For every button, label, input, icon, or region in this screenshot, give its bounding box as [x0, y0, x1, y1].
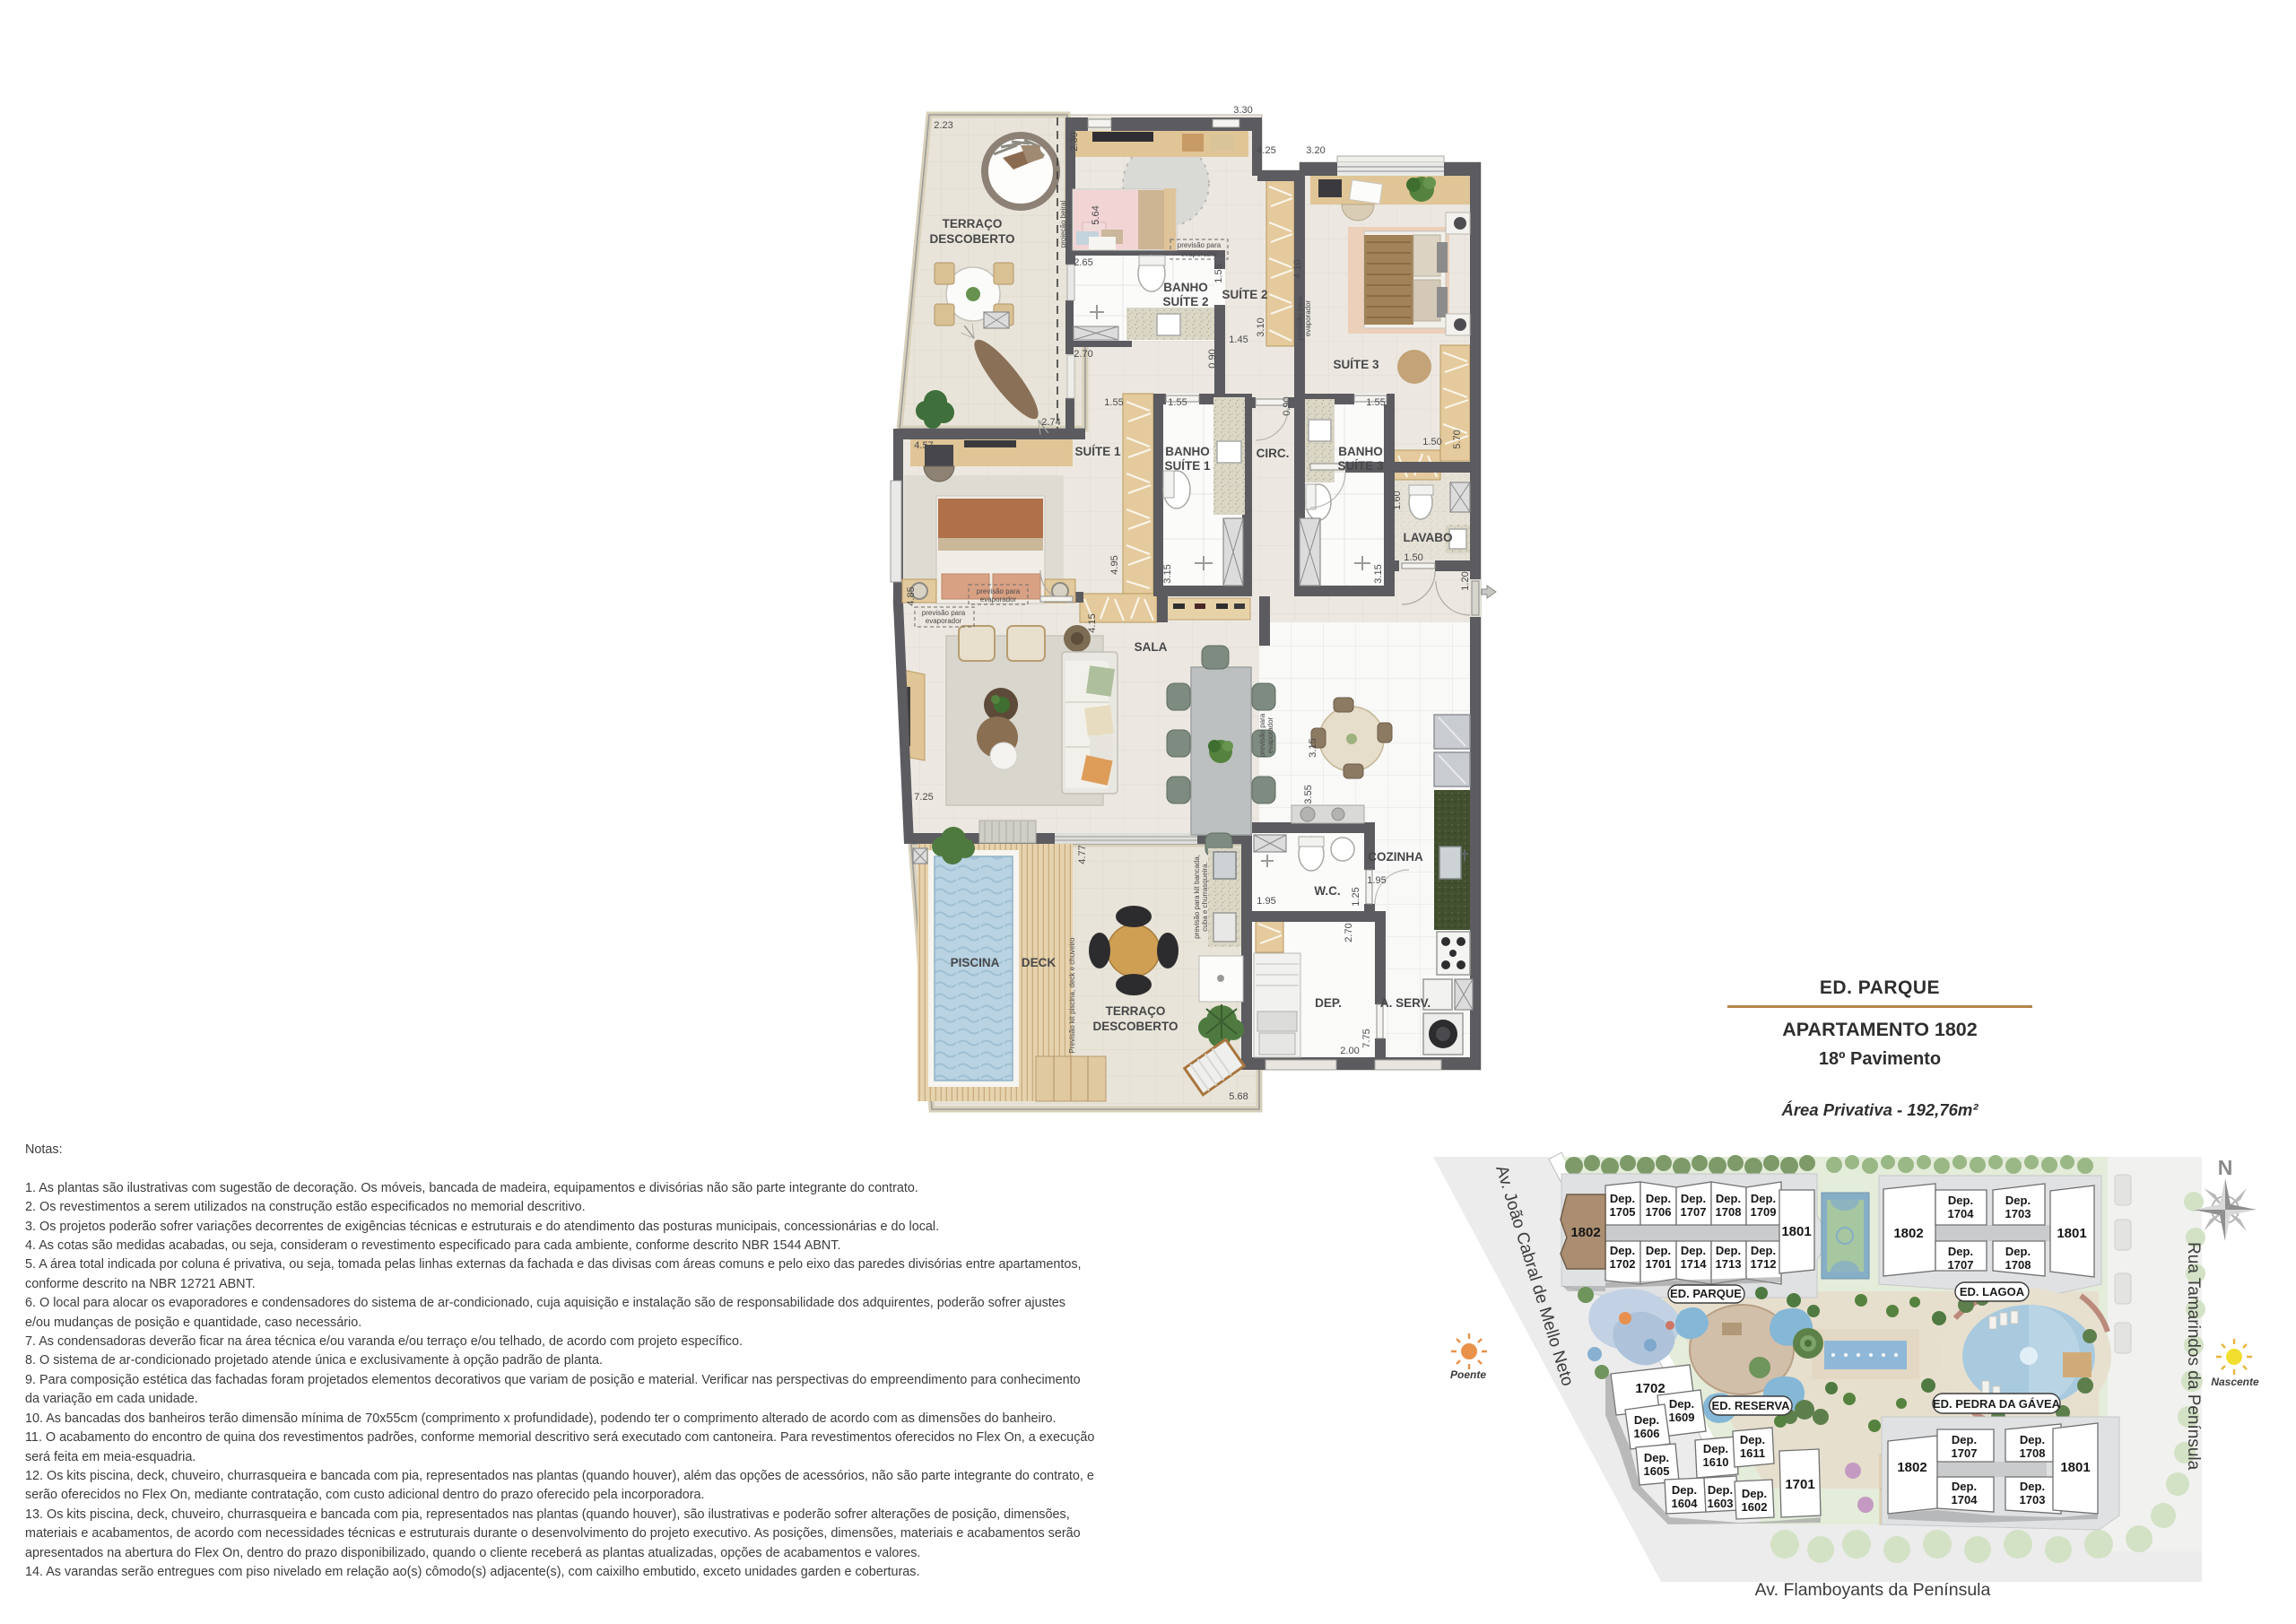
svg-text:1708: 1708 — [1716, 1205, 1742, 1219]
svg-text:1713: 1713 — [1716, 1257, 1742, 1271]
svg-text:1712: 1712 — [1751, 1257, 1777, 1271]
svg-text:evaporador: evaporador — [1304, 300, 1312, 336]
svg-text:4.25: 4.25 — [1257, 145, 1275, 156]
svg-text:DECK: DECK — [1022, 956, 1057, 969]
svg-text:5.68: 5.68 — [1229, 1091, 1248, 1102]
svg-text:COZINHA: COZINHA — [1368, 850, 1423, 864]
svg-text:4.85: 4.85 — [906, 586, 917, 605]
svg-text:1603: 1603 — [1708, 1497, 1734, 1510]
svg-text:ED. PEDRA DA GÁVEA: ED. PEDRA DA GÁVEA — [1933, 1397, 2061, 1411]
svg-text:Dep.: Dep. — [1948, 1245, 1973, 1258]
svg-text:Dep.: Dep. — [1610, 1244, 1635, 1257]
svg-text:DEP.: DEP. — [1315, 996, 1342, 1010]
svg-text:SUÍTE 2: SUÍTE 2 — [1222, 288, 1267, 301]
svg-text:1707: 1707 — [1948, 1258, 1974, 1272]
svg-text:3.20: 3.20 — [1306, 145, 1325, 156]
svg-text:1701: 1701 — [1785, 1477, 1814, 1492]
svg-text:evaporador: evaporador — [926, 617, 962, 625]
svg-text:4.15: 4.15 — [1087, 613, 1098, 632]
svg-text:W.C.: W.C. — [1314, 884, 1340, 898]
svg-text:Dep.: Dep. — [1703, 1442, 1728, 1455]
svg-text:Dep.: Dep. — [1644, 1451, 1669, 1464]
svg-text:BANHO: BANHO — [1338, 445, 1383, 458]
svg-text:1.45: 1.45 — [1229, 334, 1248, 345]
svg-text:1610: 1610 — [1703, 1455, 1729, 1469]
svg-text:TERRAÇO: TERRAÇO — [943, 217, 1003, 230]
svg-text:CIRC.: CIRC. — [1257, 447, 1290, 460]
svg-text:1801: 1801 — [2057, 1226, 2086, 1241]
svg-text:N: N — [2218, 1156, 2233, 1179]
svg-text:TERRAÇO: TERRAÇO — [1106, 1004, 1166, 1018]
svg-text:1802: 1802 — [1897, 1460, 1926, 1475]
svg-text:Previsão kit piscina, deck e c: Previsão kit piscina, deck e chuveiro — [1068, 937, 1076, 1054]
svg-text:1802: 1802 — [1893, 1226, 1923, 1241]
svg-text:1708: 1708 — [2005, 1258, 2031, 1272]
svg-text:Dep.: Dep. — [1634, 1413, 1659, 1427]
svg-text:previsão para: previsão para — [1258, 713, 1266, 757]
svg-text:1702: 1702 — [1610, 1257, 1636, 1271]
svg-text:1705: 1705 — [1610, 1205, 1636, 1219]
svg-text:Dep.: Dep. — [1681, 1192, 1706, 1205]
svg-text:Dep.: Dep. — [2020, 1480, 2045, 1493]
svg-text:projeção beiral: projeção beiral — [1059, 201, 1067, 248]
svg-text:1.50: 1.50 — [1404, 552, 1422, 563]
svg-text:1.95: 1.95 — [1367, 875, 1386, 886]
svg-text:2.74: 2.74 — [1041, 417, 1060, 428]
svg-text:2.30: 2.30 — [1069, 132, 1080, 151]
svg-text:2.65: 2.65 — [1074, 257, 1092, 268]
svg-text:PISCINA: PISCINA — [951, 956, 1000, 969]
svg-text:SALA: SALA — [1135, 640, 1168, 654]
svg-text:ED. RESERVA: ED. RESERVA — [1712, 1399, 1791, 1412]
svg-text:1.55: 1.55 — [1213, 264, 1224, 282]
svg-text:DESCOBERTO: DESCOBERTO — [1092, 1020, 1178, 1033]
svg-text:5.64: 5.64 — [1091, 205, 1101, 224]
svg-text:Rua Tamarindos da Península: Rua Tamarindos da Península — [2184, 1242, 2203, 1471]
svg-text:1708: 1708 — [2020, 1446, 2046, 1460]
svg-text:Dep.: Dep. — [1716, 1192, 1741, 1205]
svg-text:1703: 1703 — [2005, 1207, 2031, 1220]
svg-text:1714: 1714 — [1681, 1257, 1708, 1271]
svg-text:cuba e churrasqueira.: cuba e churrasqueira. — [1201, 862, 1209, 931]
svg-text:7.75: 7.75 — [1361, 1029, 1372, 1047]
svg-text:previsão para: previsão para — [977, 587, 1021, 595]
svg-text:Poente: Poente — [1450, 1368, 1486, 1381]
svg-text:Dep.: Dep. — [1681, 1244, 1706, 1257]
svg-text:SUÍTE 3: SUÍTE 3 — [1337, 459, 1384, 473]
svg-text:Dep.: Dep. — [1948, 1194, 1973, 1207]
svg-text:LAVABO: LAVABO — [1404, 531, 1453, 544]
svg-text:Dep.: Dep. — [1751, 1244, 1776, 1257]
svg-text:2.23: 2.23 — [934, 120, 952, 131]
svg-text:Av. Flamboyants da Península: Av. Flamboyants da Península — [1755, 1580, 1991, 1600]
svg-text:DESCOBERTO: DESCOBERTO — [929, 232, 1014, 246]
svg-text:evaporador: evaporador — [980, 595, 1017, 604]
svg-text:1606: 1606 — [1634, 1427, 1660, 1440]
svg-text:Dep.: Dep. — [2005, 1245, 2031, 1258]
svg-text:Dep.: Dep. — [1952, 1433, 1977, 1446]
svg-text:1602: 1602 — [1742, 1500, 1768, 1514]
svg-text:Dep.: Dep. — [1646, 1244, 1671, 1257]
svg-text:Dep.: Dep. — [2020, 1433, 2045, 1446]
svg-text:BANHO: BANHO — [1165, 445, 1210, 458]
svg-text:3.10: 3.10 — [1256, 317, 1266, 336]
svg-text:1702: 1702 — [1635, 1381, 1665, 1396]
svg-text:previsão para kit bancada,: previsão para kit bancada, — [1193, 855, 1201, 939]
svg-text:1802: 1802 — [1570, 1225, 1600, 1240]
svg-text:4.77: 4.77 — [1077, 845, 1088, 864]
svg-text:1.55: 1.55 — [1366, 397, 1385, 408]
svg-text:1.55: 1.55 — [1168, 397, 1187, 408]
svg-text:4.57: 4.57 — [914, 440, 933, 451]
svg-text:ED. LAGOA: ED. LAGOA — [1960, 1285, 2025, 1298]
svg-text:1801: 1801 — [2060, 1460, 2090, 1475]
svg-text:1709: 1709 — [1751, 1205, 1777, 1219]
svg-text:SUÍTE 2: SUÍTE 2 — [1162, 295, 1208, 308]
svg-text:7.25: 7.25 — [914, 792, 933, 803]
svg-text:3.15: 3.15 — [1373, 564, 1384, 583]
svg-text:previsão para: previsão para — [922, 609, 966, 617]
svg-text:1605: 1605 — [1644, 1464, 1670, 1478]
svg-text:1704: 1704 — [1952, 1493, 1979, 1507]
svg-text:Dep.: Dep. — [1610, 1192, 1635, 1205]
svg-text:1.60: 1.60 — [1392, 491, 1403, 509]
svg-text:evaporador: evaporador — [1266, 716, 1274, 753]
svg-text:Dep.: Dep. — [1708, 1483, 1733, 1497]
svg-text:Dep.: Dep. — [1952, 1480, 1977, 1493]
svg-text:1701: 1701 — [1646, 1257, 1672, 1271]
svg-text:previsão para: previsão para — [1296, 296, 1304, 340]
svg-text:2.70: 2.70 — [1074, 349, 1092, 360]
svg-text:Dep.: Dep. — [1669, 1397, 1694, 1411]
svg-text:3.55: 3.55 — [1303, 785, 1314, 803]
svg-text:1609: 1609 — [1669, 1411, 1695, 1424]
svg-text:1604: 1604 — [1672, 1497, 1699, 1510]
svg-text:1704: 1704 — [1948, 1207, 1975, 1220]
svg-text:0.90: 0.90 — [1282, 396, 1292, 415]
svg-text:1.55: 1.55 — [1104, 397, 1123, 408]
svg-text:1707: 1707 — [1952, 1446, 1978, 1460]
svg-text:3.30: 3.30 — [1233, 105, 1252, 116]
svg-text:4.95: 4.95 — [1109, 555, 1120, 574]
svg-text:Dep.: Dep. — [1672, 1483, 1697, 1497]
svg-text:1.50: 1.50 — [1422, 437, 1441, 447]
svg-text:4.10: 4.10 — [1292, 259, 1303, 278]
svg-text:2.70: 2.70 — [1344, 923, 1354, 942]
svg-text:previsão para: previsão para — [1178, 241, 1222, 249]
svg-text:2.00: 2.00 — [1340, 1046, 1359, 1056]
svg-text:Dep.: Dep. — [1742, 1487, 1767, 1500]
svg-text:SUÍTE 1: SUÍTE 1 — [1074, 445, 1121, 458]
svg-text:1707: 1707 — [1681, 1205, 1707, 1219]
svg-text:0.90: 0.90 — [1207, 349, 1218, 368]
svg-text:1.95: 1.95 — [1257, 896, 1275, 907]
svg-text:Dep.: Dep. — [1646, 1192, 1671, 1205]
svg-text:3.15: 3.15 — [1308, 738, 1318, 757]
svg-text:1611: 1611 — [1740, 1446, 1765, 1460]
svg-text:BANHO: BANHO — [1163, 281, 1208, 294]
svg-text:Dep.: Dep. — [1716, 1244, 1741, 1257]
svg-text:Dep.: Dep. — [1751, 1192, 1776, 1205]
svg-text:1703: 1703 — [2020, 1493, 2046, 1507]
svg-text:1706: 1706 — [1646, 1205, 1672, 1219]
svg-text:1801: 1801 — [1781, 1224, 1811, 1239]
svg-text:SUÍTE 3: SUÍTE 3 — [1333, 358, 1379, 371]
svg-text:1.25: 1.25 — [1351, 887, 1361, 906]
svg-text:A. SERV.: A. SERV. — [1380, 996, 1431, 1010]
svg-text:Nascente: Nascente — [2211, 1376, 2259, 1388]
svg-text:5.70: 5.70 — [1452, 430, 1463, 448]
svg-text:Dep.: Dep. — [1740, 1433, 1765, 1446]
svg-text:ED. PARQUE: ED. PARQUE — [1670, 1287, 1742, 1300]
svg-text:SUÍTE 1: SUÍTE 1 — [1164, 459, 1211, 473]
svg-text:3.15: 3.15 — [1162, 564, 1173, 583]
svg-text:Dep.: Dep. — [2005, 1194, 2031, 1207]
svg-text:1.20: 1.20 — [1460, 571, 1471, 590]
svg-text:evaporador: evaporador — [1181, 250, 1218, 258]
